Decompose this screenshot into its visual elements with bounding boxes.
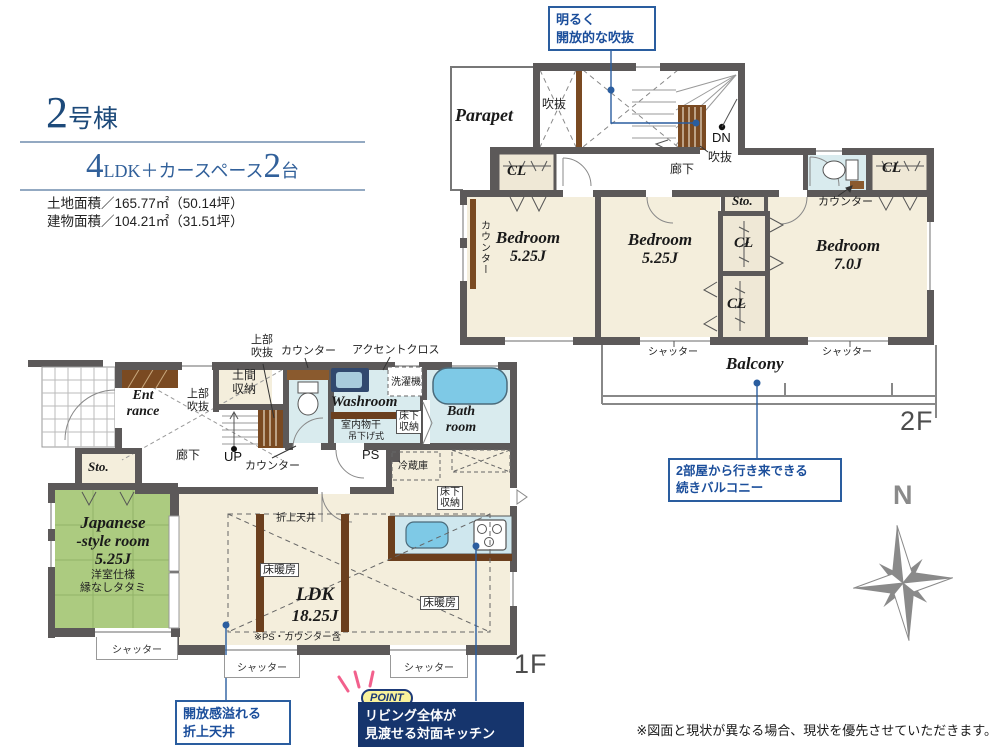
corridor-label-1f: 廊下 <box>176 449 200 463</box>
japanese-room-note1: 洋室仕様 <box>48 569 178 582</box>
vanity <box>331 368 369 392</box>
washer-label: 洗濯機 <box>391 377 421 389</box>
building-suffix: 号棟 <box>68 106 118 133</box>
stairs-up-label: UP <box>224 450 242 465</box>
counter-stairs-label: カウンター <box>245 460 300 473</box>
toilet-counter-1f <box>287 370 329 380</box>
layout-num1: 4 <box>86 146 104 185</box>
underfloor-line1: 床下 <box>440 487 460 498</box>
bath-line1: Bath <box>435 404 487 420</box>
ldk-name: LDK <box>255 584 375 606</box>
closet-label: CL <box>507 163 526 180</box>
compass-north-label: N <box>893 480 913 511</box>
ldk-label: LDK 18.25J <box>255 584 375 625</box>
ps-shaft <box>388 446 400 462</box>
void-callout-line2: 開放的な吹抜 <box>556 29 648 47</box>
washroom-label: Washroom <box>331 394 397 411</box>
drying-bar <box>331 412 401 419</box>
shutter-label: シャッター <box>822 347 872 359</box>
drying-label: 室内物干 <box>341 420 381 432</box>
japanese-room-note2: 縁なしタタミ <box>48 582 178 595</box>
ceiling-callout-line1: 開放感溢れる <box>183 705 283 723</box>
disclaimer: ※図面と現状が異なる場合、現状を優先させていただきます。 <box>560 724 997 739</box>
upper-void-line1: 上部 <box>182 388 214 401</box>
closet-label: CL <box>882 160 901 177</box>
void-callout-line1: 明るく <box>556 11 648 29</box>
layout-text2: 台 <box>281 161 299 181</box>
porch <box>28 360 115 447</box>
underfloor-storage-label: 床下 収納 <box>396 410 422 434</box>
balcony-callout: 2部屋から行き来できる 続きバルコニー <box>668 458 842 502</box>
bedroom2-name: Bedroom <box>600 230 720 250</box>
stair-void-label: 吹抜 <box>708 151 732 165</box>
corridor-label-2f: 廊下 <box>670 163 694 177</box>
upper-void-line2: 吹抜 <box>245 347 279 360</box>
bedroom3-name: Bedroom <box>778 236 918 256</box>
land-area: 土地面積／165.77㎡（50.14坪） <box>47 196 244 212</box>
stairs-1f <box>222 408 285 452</box>
layout-num2: 2 <box>263 146 281 185</box>
shutter-label: シャッター <box>96 637 178 660</box>
bathroom-label: Bath room <box>435 404 487 436</box>
upper-void-label-top: 上部 吹抜 <box>245 334 279 359</box>
bedroom1-label: Bedroom 5.25J <box>468 228 588 266</box>
kitchen-callout-line2: 見渡せる対面キッチン <box>365 725 517 743</box>
kitchen-callout-line1: リビング全体が <box>365 707 517 725</box>
layout-text1: LDK＋カースペース <box>104 161 264 181</box>
building-number: 2 <box>46 88 68 137</box>
divider <box>20 189 365 191</box>
underfloor-line2: 収納 <box>440 498 460 509</box>
floorplan-canvas: 2号棟 4LDK＋カースペース2台 土地面積／165.77㎡（50.14坪） 建… <box>0 0 1000 751</box>
floor2-label: 2F <box>900 406 934 437</box>
ceiling-callout: 開放感溢れる 折上天井 <box>175 700 291 745</box>
counter-label-top: カウンター <box>281 345 336 358</box>
upper-void-line2: 吹抜 <box>182 401 214 414</box>
ldk-note: ※PS・カウンター含 <box>254 633 341 644</box>
shutter-label: シャッター <box>390 655 468 678</box>
japanese-room-name2: -style room <box>48 533 178 551</box>
void-label-2f: 吹抜 <box>542 98 566 112</box>
ceiling-callout-line2: 折上天井 <box>183 723 283 741</box>
balcony-callout-line1: 2部屋から行き来できる <box>676 463 834 480</box>
balcony-label: Balcony <box>726 354 784 374</box>
ps-label: PS <box>362 448 379 463</box>
upper-void-label-entrance: 上部 吹抜 <box>182 388 214 413</box>
fridge-label: 冷蔵庫 <box>398 461 428 473</box>
upper-void-line1: 上部 <box>245 334 279 347</box>
japanese-room-label: Japanese -style room 5.25J 洋室仕様 縁なしタタミ <box>48 513 178 595</box>
building-area: 建物面積／104.21㎡（31.51坪） <box>47 214 244 230</box>
floor-heating-label: 床暖房 <box>260 563 299 577</box>
balcony-callout-line2: 続きバルコニー <box>676 480 834 497</box>
entrance-line2: rance <box>116 404 170 420</box>
underfloor-storage-kitchen-label: 床下 収納 <box>437 486 463 510</box>
bedroom2-label: Bedroom 5.25J <box>600 230 720 268</box>
shutter-label: シャッター <box>224 655 300 678</box>
compass-rose <box>847 520 959 646</box>
underfloor-line1: 床下 <box>399 411 419 422</box>
ldk-size: 18.25J <box>255 606 375 626</box>
storage-label-1f: Sto. <box>88 460 109 475</box>
closet-label: CL <box>727 296 746 313</box>
kitchen-sink <box>406 522 448 548</box>
bathtub <box>433 368 507 404</box>
kitchen-callout: リビング全体が 見渡せる対面キッチン <box>358 702 524 747</box>
underfloor-line2: 収納 <box>399 422 419 433</box>
doma-line1: 土間 <box>222 369 266 383</box>
bedroom3-label: Bedroom 7.0J <box>778 236 918 274</box>
shoe-cabinet <box>122 368 178 388</box>
void-callout: 明るく 開放的な吹抜 <box>548 6 656 51</box>
raised-ceiling-label: 折上天井 <box>276 513 316 525</box>
bedroom2-size: 5.25J <box>600 250 720 268</box>
page-title: 2号棟 <box>46 88 118 139</box>
layout-summary: 4LDK＋カースペース2台 <box>20 146 365 193</box>
japanese-room-size: 5.25J <box>48 551 178 569</box>
closet-label: CL <box>734 235 753 252</box>
floor-heating-label: 床暖房 <box>420 596 459 610</box>
bedroom3-size: 7.0J <box>778 256 918 274</box>
storage-label-2f: Sto. <box>732 194 753 209</box>
shutter-label: シャッター <box>648 347 698 359</box>
doma-line2: 収納 <box>222 383 266 397</box>
counter-toilet-label: カウンター <box>818 196 873 209</box>
divider <box>20 141 365 143</box>
drying-sub-label: 吊下げ式 <box>348 431 384 441</box>
entrance-label: Ent rance <box>116 388 170 420</box>
accent-cloth-label: アクセントクロス <box>352 344 439 357</box>
bedroom1-size: 5.25J <box>468 248 588 266</box>
parapet-label: Parapet <box>455 105 513 126</box>
toilet-fixture-1f <box>298 382 318 415</box>
stairs-down-label: DN <box>712 131 731 146</box>
bedroom1-name: Bedroom <box>468 228 588 248</box>
japanese-room-name1: Japanese <box>48 513 178 533</box>
doma-storage-label: 土間 収納 <box>222 369 266 397</box>
floor1-label: 1F <box>514 649 548 680</box>
bath-line2: room <box>435 420 487 436</box>
entrance-line1: Ent <box>116 388 170 404</box>
